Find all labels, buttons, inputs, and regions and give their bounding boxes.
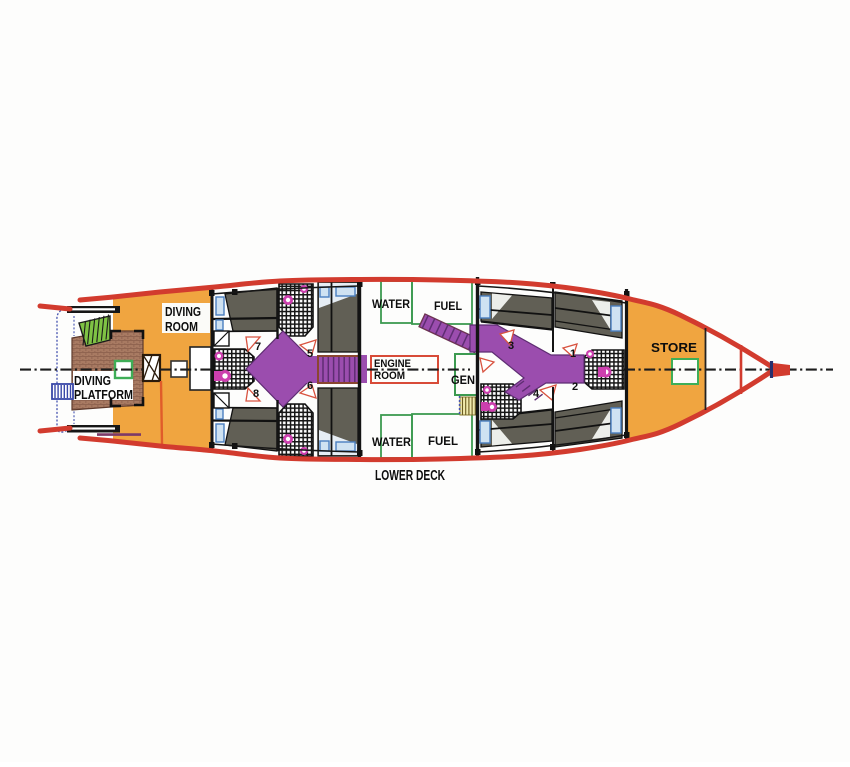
svg-text:1: 1 (570, 348, 576, 360)
svg-text:ROOM: ROOM (165, 320, 198, 334)
svg-text:PLATFORM: PLATFORM (74, 388, 133, 402)
svg-text:3: 3 (508, 340, 514, 352)
svg-text:ROOM: ROOM (374, 370, 405, 382)
svg-text:4: 4 (533, 388, 540, 400)
svg-text:FUEL: FUEL (434, 299, 462, 313)
svg-text:2: 2 (572, 381, 578, 393)
svg-text:DIVING: DIVING (74, 374, 111, 388)
svg-text:LOWER DECK: LOWER DECK (375, 468, 445, 484)
svg-text:WATER: WATER (372, 297, 410, 311)
svg-text:WATER: WATER (372, 435, 411, 449)
svg-text:8: 8 (253, 388, 259, 400)
svg-text:GEN: GEN (451, 375, 475, 387)
svg-text:7: 7 (255, 341, 261, 353)
svg-text:5: 5 (307, 348, 313, 360)
svg-text:ENGINE: ENGINE (374, 358, 411, 370)
svg-text:6: 6 (307, 380, 313, 392)
svg-text:DIVING: DIVING (165, 305, 201, 319)
svg-text:FUEL: FUEL (428, 434, 458, 448)
svg-text:STORE: STORE (651, 340, 697, 355)
